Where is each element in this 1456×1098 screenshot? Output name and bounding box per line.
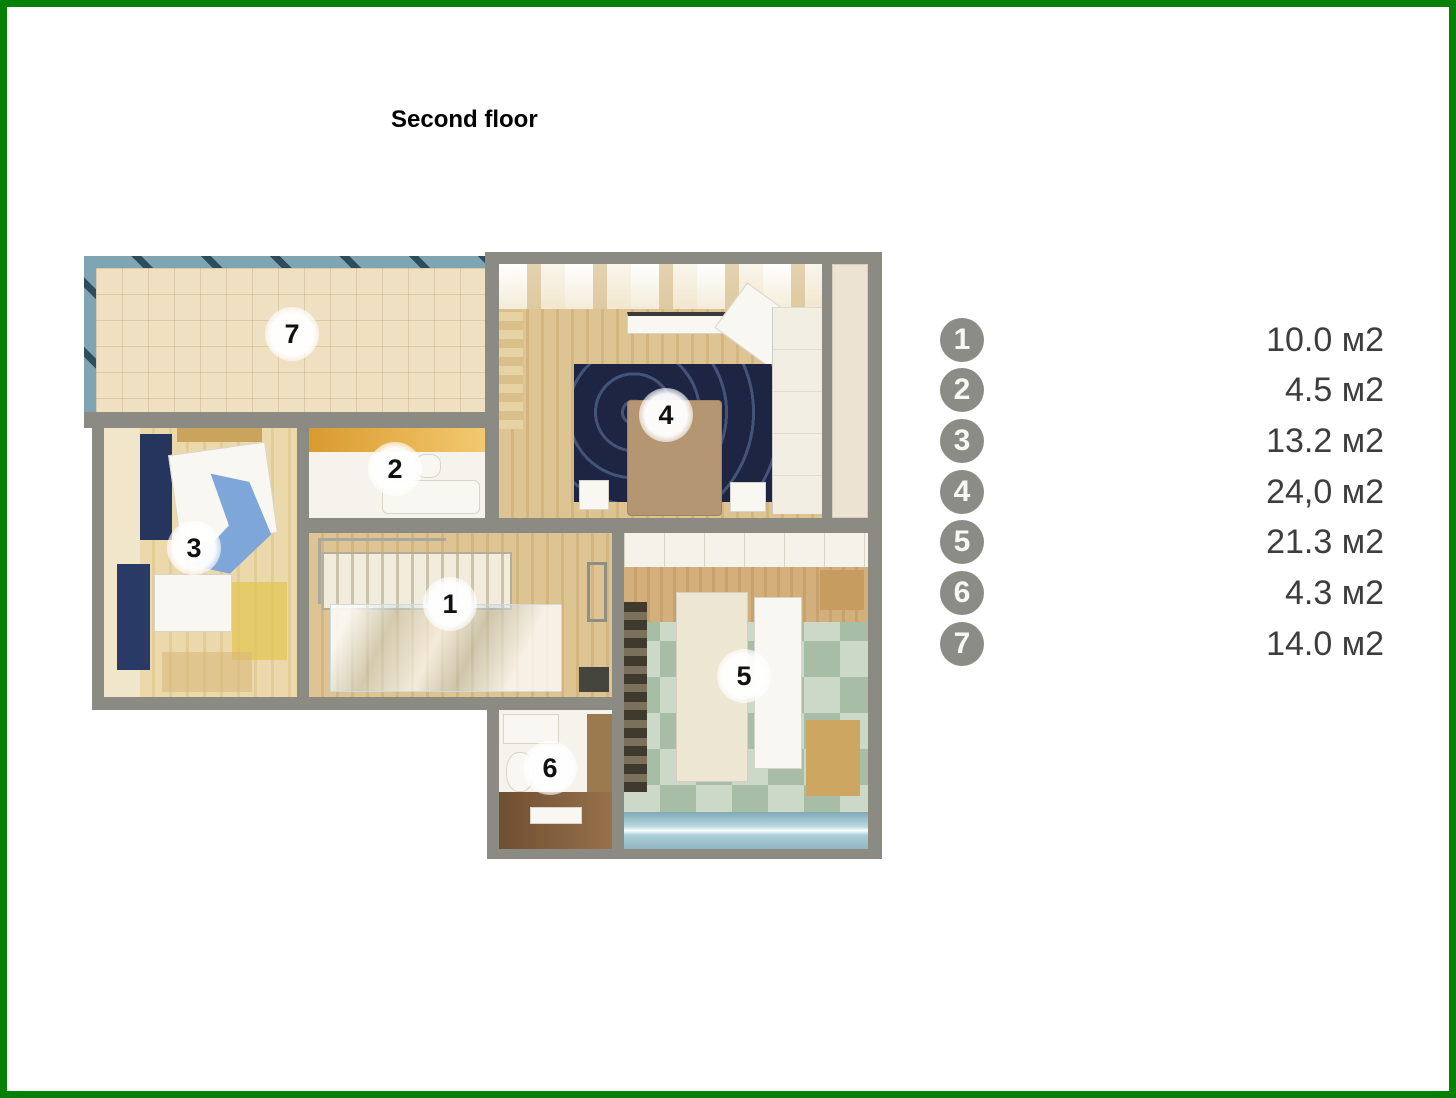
room-badge-6: 6 — [523, 741, 577, 795]
legend-number-badge: 5 — [940, 520, 984, 564]
wall — [92, 697, 624, 710]
room-badge-3: 3 — [167, 521, 221, 575]
room-badge-label: 1 — [442, 589, 457, 620]
door-panel — [587, 714, 612, 798]
bath-mat — [530, 807, 582, 824]
room-badge-2: 2 — [368, 442, 422, 496]
page-title: Second floor — [391, 106, 538, 134]
room-badge-label: 2 — [387, 454, 402, 485]
railing — [587, 562, 607, 622]
room-badge-label: 4 — [658, 400, 673, 431]
room-badge-label: 3 — [186, 533, 201, 564]
desk — [154, 574, 232, 632]
floor-plan: 7 4 2 3 1 5 6 — [82, 252, 882, 859]
tv-panel — [140, 434, 172, 540]
dresser — [117, 564, 150, 670]
legend-area-value: 24,0 м2 — [1007, 470, 1384, 514]
wall — [485, 252, 499, 533]
sink-counter — [503, 714, 559, 744]
wall — [822, 264, 832, 518]
desk — [806, 720, 860, 796]
ladder-shelf — [624, 602, 647, 792]
legend-area-value: 13.2 м2 — [1007, 419, 1384, 463]
legend-number-badge: 6 — [940, 571, 984, 615]
side-curtain — [499, 309, 523, 429]
window-band — [624, 812, 868, 849]
room-badge-4: 4 — [639, 388, 693, 442]
terrace-railing-top — [84, 256, 487, 268]
staircase — [322, 552, 512, 610]
wall — [487, 849, 882, 859]
nightstand — [579, 480, 609, 510]
legend-area-value: 14.0 м2 — [1007, 622, 1384, 666]
wall — [84, 412, 487, 428]
legend-area-value: 4.3 м2 — [1007, 571, 1384, 615]
shelf-band — [624, 533, 868, 567]
terrace-railing-left — [84, 256, 96, 416]
closet-column — [832, 264, 868, 518]
wall — [612, 518, 624, 859]
room-badge-1: 1 — [423, 577, 477, 631]
legend-number-badge: 4 — [940, 470, 984, 514]
wall — [297, 518, 868, 533]
legend-number-badge: 7 — [940, 622, 984, 666]
legend-area-value: 21.3 м2 — [1007, 520, 1384, 564]
wall — [485, 252, 882, 264]
nightstand — [730, 482, 766, 512]
room-badge-label: 7 — [284, 319, 299, 350]
cabinet — [820, 570, 864, 610]
wall — [487, 697, 499, 859]
legend-number-badge: 3 — [940, 419, 984, 463]
legend-area-value: 4.5 м2 — [1007, 368, 1384, 412]
wall — [297, 428, 309, 709]
legend-number-badge: 1 — [940, 318, 984, 362]
legend-number-badge: 2 — [940, 368, 984, 412]
wall — [868, 252, 882, 859]
room-badge-7: 7 — [265, 307, 319, 361]
room-badge-label: 6 — [542, 753, 557, 784]
floor-mat — [162, 652, 252, 692]
rug — [232, 582, 287, 660]
room-badge-5: 5 — [717, 649, 771, 703]
legend-area-value: 10.0 м2 — [1007, 318, 1384, 362]
wardrobe — [772, 307, 823, 514]
page-frame: Second floor — [0, 0, 1456, 1098]
doormat — [579, 667, 609, 692]
shelf — [177, 428, 262, 442]
wall — [92, 412, 104, 710]
room-badge-label: 5 — [736, 661, 751, 692]
